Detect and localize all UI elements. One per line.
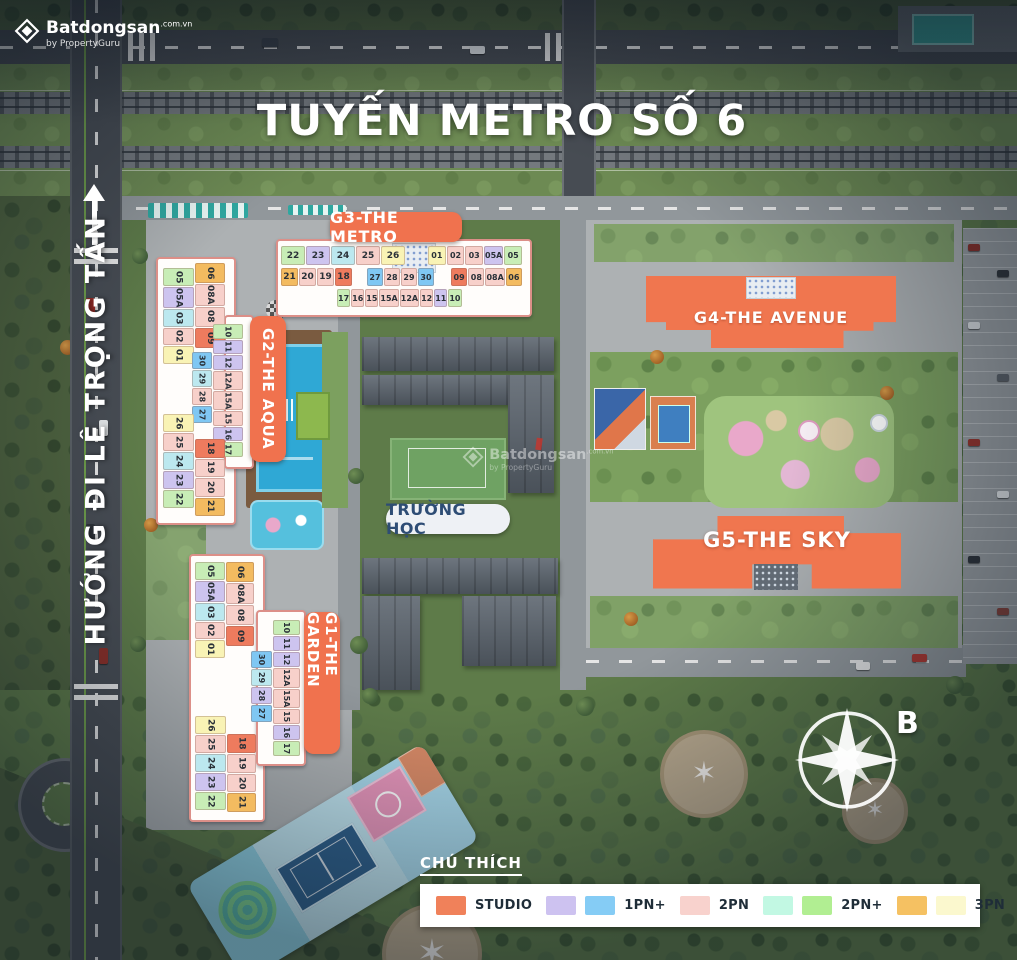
g2-col: 10111212A15A151617	[213, 324, 243, 457]
unit-16: 16	[351, 289, 364, 307]
unit-05A: 05A	[484, 246, 503, 265]
tree	[130, 636, 146, 652]
unit-30: 30	[192, 352, 212, 369]
legend-label: 2PN	[719, 898, 749, 913]
unit-25: 25	[163, 433, 194, 451]
unit-17: 17	[273, 741, 300, 756]
star-icon: ✶	[691, 759, 716, 789]
rooftop-pool	[912, 14, 974, 45]
compass-north-label: B	[896, 706, 919, 741]
unit-09: 09	[226, 626, 254, 646]
g2-col: 30292827	[192, 352, 212, 423]
metro-verge-1	[0, 64, 1017, 92]
unit-15: 15	[213, 411, 243, 426]
g3-row: 2223242526	[281, 246, 405, 265]
unit-18: 18	[195, 439, 225, 458]
building-g4-label: G4-THE AVENUE	[646, 308, 896, 327]
legend-item: 2PN+	[763, 896, 883, 915]
badge-g1: G1-THE GARDEN	[304, 612, 340, 754]
unit-24: 24	[331, 246, 355, 265]
unit-21: 21	[195, 498, 225, 517]
unit-12A: 12A	[400, 289, 419, 307]
tree	[362, 688, 378, 704]
unit-30: 30	[418, 268, 434, 286]
unit-28: 28	[384, 268, 400, 286]
unit-22: 22	[281, 246, 305, 265]
unit-05: 05	[163, 268, 194, 286]
unit-29: 29	[401, 268, 417, 286]
autumn-tree	[624, 612, 638, 626]
unit-02: 02	[163, 328, 194, 346]
g5-lobby-grid	[754, 564, 798, 590]
unit-05A: 05A	[163, 287, 194, 309]
unit-10: 10	[213, 324, 243, 339]
unit-25: 25	[356, 246, 380, 265]
parking-strip	[963, 228, 1017, 664]
legend-item: 2PN	[680, 896, 749, 915]
g3-row: 01020305A05	[428, 246, 522, 265]
unit-15: 15	[273, 709, 300, 724]
unit-21: 21	[281, 268, 298, 286]
unit-01: 01	[195, 640, 225, 658]
g2-col: 0505A030201	[163, 268, 194, 364]
unit-10: 10	[448, 289, 461, 307]
g1-col: 0505A030201	[195, 562, 225, 658]
unit-28: 28	[251, 687, 272, 704]
unit-19: 19	[227, 754, 256, 773]
g3-row: 17161515A12A121110	[337, 289, 460, 307]
school-building-4	[362, 558, 558, 594]
unit-08A: 08A	[195, 284, 225, 306]
brand-diamond-icon	[462, 446, 484, 468]
unit-08A: 08A	[485, 268, 504, 286]
unit-29: 29	[251, 669, 272, 686]
brand-domain: .com.vn	[160, 20, 192, 29]
legend-item: STUDIO	[436, 896, 532, 915]
unit-27: 27	[192, 406, 212, 423]
g4-lobby-grid	[746, 277, 796, 299]
unit-12A: 12A	[273, 668, 300, 687]
right-campus-north-green	[594, 224, 954, 262]
badge-g2: G2-THE AQUA	[250, 316, 286, 462]
pavilion-circle	[798, 420, 820, 442]
legend-swatch	[585, 896, 615, 915]
unit-18: 18	[335, 268, 352, 286]
unit-23: 23	[163, 471, 194, 489]
legend-swatch	[680, 896, 710, 915]
unit-01: 01	[428, 246, 446, 265]
unit-20: 20	[227, 774, 256, 793]
master-plan-map: ✶ ✶ ✶ G4-THE AVENUE G5-THE SKY 222324	[0, 0, 1017, 960]
brand-diamond-icon	[14, 18, 40, 44]
star-plaza-1: ✶	[660, 730, 748, 818]
unit-08A: 08A	[226, 583, 254, 605]
g3-row: 090808A06	[451, 268, 522, 286]
legend-item: 1PN+	[546, 896, 666, 915]
unit-18: 18	[227, 734, 256, 753]
unit-12A: 12A	[213, 371, 243, 390]
unit-05: 05	[504, 246, 522, 265]
brand-logo: Batdongsan.com.vn by PropertyGuru	[14, 18, 192, 49]
basketball-court	[650, 396, 696, 450]
g2-col: 2625242322	[163, 414, 194, 508]
g1-col: 10111212A15A151617	[273, 620, 300, 756]
unit-11: 11	[273, 636, 300, 651]
metro-verge-3	[0, 168, 1017, 196]
legend-label: 2PN+	[841, 898, 883, 913]
unit-06: 06	[195, 263, 225, 283]
unit-15A: 15A	[273, 689, 300, 708]
right-campus-south-green	[590, 596, 958, 648]
legend-swatch	[897, 896, 927, 915]
unit-22: 22	[195, 792, 226, 810]
g2-col: 18192021	[195, 439, 225, 516]
unit-08: 08	[468, 268, 484, 286]
unit-08: 08	[226, 605, 254, 625]
badge-g3: G3-THE METRO	[330, 212, 462, 242]
g1-col: 0608A0809	[226, 562, 254, 646]
compass-icon	[795, 708, 899, 812]
metro-rail-2	[0, 146, 1017, 168]
unit-12: 12	[273, 652, 300, 667]
school-building-2	[362, 375, 512, 405]
unit-20: 20	[195, 478, 225, 497]
tree	[946, 676, 964, 694]
tennis-court	[275, 822, 379, 913]
tree	[576, 698, 594, 716]
school-label: TRƯỜNG HỌC	[386, 504, 510, 534]
unit-06: 06	[506, 268, 522, 286]
g1-col: 2625242322	[195, 716, 226, 810]
unit-11: 11	[213, 340, 243, 355]
unit-24: 24	[195, 754, 226, 772]
unit-26: 26	[195, 716, 226, 734]
legend-item: 3PN	[897, 896, 1005, 915]
kids-pool	[250, 500, 324, 550]
legend-label: STUDIO	[475, 898, 532, 913]
unit-28: 28	[192, 388, 212, 405]
unit-12: 12	[420, 289, 433, 307]
street-label: HƯỚNG ĐI LÊ TRỌNG TẤN	[81, 242, 112, 646]
unit-19: 19	[195, 459, 225, 478]
g3-row: 27282930	[367, 268, 434, 286]
tree	[132, 248, 148, 264]
unit-24: 24	[163, 452, 194, 470]
sport-court-multicolor	[594, 388, 646, 450]
unit-12: 12	[213, 355, 243, 370]
tree	[350, 636, 368, 654]
spiral-garden	[208, 870, 288, 950]
unit-03: 03	[163, 309, 194, 327]
unit-05: 05	[195, 562, 225, 580]
school-building-5	[362, 596, 420, 690]
unit-27: 27	[251, 705, 272, 722]
legend-title: CHÚ THÍCH	[420, 854, 522, 876]
unit-16: 16	[273, 725, 300, 740]
pool-lawn-pad	[296, 392, 330, 440]
unit-30: 30	[251, 651, 272, 668]
unit-02: 02	[447, 246, 465, 265]
unit-05A: 05A	[195, 581, 225, 603]
unit-10: 10	[273, 620, 300, 635]
building-g5-label: G5-THE SKY	[653, 528, 901, 552]
g1-col: 18192021	[227, 734, 256, 812]
brand-byline: by PropertyGuru	[46, 39, 192, 49]
school-building-3	[508, 375, 554, 493]
unit-26: 26	[381, 246, 405, 265]
legend-swatch	[936, 896, 966, 915]
metro-title: TUYẾN METRO SỐ 6	[252, 96, 752, 146]
unit-15: 15	[365, 289, 378, 307]
unit-25: 25	[195, 735, 226, 753]
unit-17: 17	[337, 289, 350, 307]
unit-26: 26	[163, 414, 194, 432]
school-building-6	[462, 596, 556, 666]
g3-row: 21201918	[281, 268, 352, 286]
unit-01: 01	[163, 346, 194, 364]
unit-21: 21	[227, 793, 256, 812]
unit-29: 29	[192, 370, 212, 387]
right-campus-south-road	[586, 645, 966, 677]
unit-02: 02	[195, 622, 225, 640]
unit-22: 22	[163, 490, 194, 508]
school-building-1	[362, 337, 554, 371]
unit-27: 27	[367, 268, 383, 286]
unit-23: 23	[195, 773, 226, 791]
compass	[795, 708, 899, 812]
pavilion-circle-2	[870, 414, 888, 432]
legend-swatch	[802, 896, 832, 915]
unit-03: 03	[195, 603, 225, 621]
legend-swatch	[546, 896, 576, 915]
g1-col: 30292827	[251, 651, 272, 722]
unit-09: 09	[451, 268, 467, 286]
unit-15A: 15A	[379, 289, 398, 307]
unit-19: 19	[317, 268, 334, 286]
legend-label: 1PN+	[624, 898, 666, 913]
unit-03: 03	[465, 246, 483, 265]
autumn-tree	[880, 386, 894, 400]
unit-11: 11	[434, 289, 447, 307]
unit-23: 23	[306, 246, 330, 265]
tree	[348, 468, 364, 484]
star-icon: ✶	[417, 936, 447, 960]
legend-swatch	[763, 896, 793, 915]
brand-name: Batdongsan	[46, 18, 160, 38]
shop-canopies	[148, 203, 248, 218]
unit-20: 20	[299, 268, 316, 286]
unit-06: 06	[226, 562, 254, 582]
unit-15A: 15A	[213, 391, 243, 410]
legend-bar: STUDIO1PN+2PN2PN+3PN	[420, 884, 980, 927]
playground-area	[704, 396, 894, 508]
autumn-tree	[650, 350, 664, 364]
legend-swatch	[436, 896, 466, 915]
legend-label: 3PN	[975, 898, 1005, 913]
